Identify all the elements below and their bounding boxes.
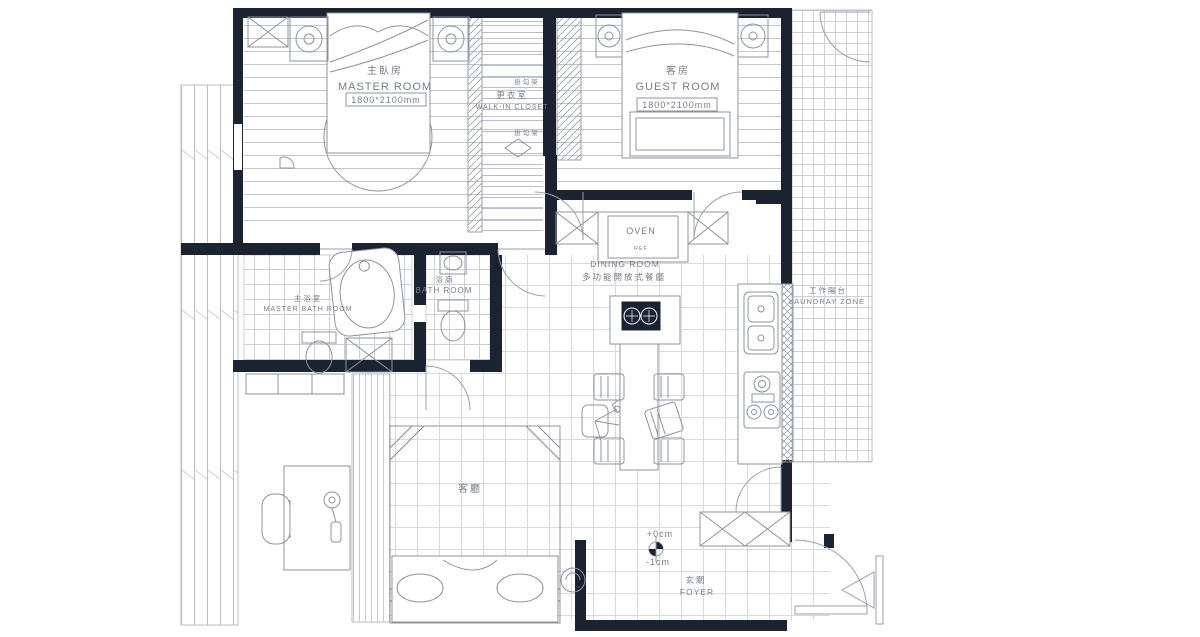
- wall-segment: [781, 8, 792, 194]
- master-bath-label-zh: 主浴室: [294, 293, 323, 303]
- dining-room-label-en: DINING ROOM: [590, 259, 660, 269]
- closet-rack-bottom-label: 掛勾架: [514, 128, 540, 137]
- level-outside-label: -1cm: [646, 557, 670, 567]
- oven-column: [556, 212, 728, 262]
- master-room-label-zh: 主臥房: [367, 64, 403, 77]
- sofa: [392, 556, 558, 622]
- dining-table: [620, 344, 658, 470]
- master-bath-label-en: MASTER BATH ROOM: [264, 306, 353, 313]
- foyer-cabinet: [700, 512, 790, 546]
- guest-bed-size: 1800*2100mm: [642, 100, 712, 110]
- wall-segment: [233, 360, 414, 372]
- desk: [284, 466, 350, 570]
- bath-room-label-zh: 浴廁: [436, 274, 455, 284]
- guest-room-label-zh: 客房: [666, 64, 690, 77]
- closet-rack-top-label: 掛勾架: [514, 77, 540, 86]
- desk-area: [262, 466, 350, 570]
- foyer-label-zh: 玄關: [685, 575, 706, 585]
- kitchen-laundry-wall-hatch: [781, 284, 793, 462]
- wall-segment: [824, 534, 834, 548]
- living-room-label: 客廳: [458, 482, 482, 495]
- oven-label: OVEN: [626, 226, 656, 236]
- bath-room-floor: [426, 255, 490, 360]
- walk-in-closet-shelves: [482, 19, 543, 232]
- wall-segment: [414, 255, 426, 305]
- tv-cabinet-strip: [352, 374, 390, 622]
- side-balcony-deck: [181, 85, 238, 625]
- laundry-balcony-floor: [792, 10, 872, 462]
- floor-plan-drawing: 主臥房 MASTER ROOM 1800*2100mm 掛勾架 更衣室 WALK…: [0, 0, 1200, 637]
- window-slit: [234, 124, 242, 170]
- wall-segment: [470, 360, 502, 372]
- ref-label: REF: [634, 246, 648, 252]
- vanity-counter: [246, 374, 344, 394]
- wall-segment: [575, 620, 787, 631]
- wall-segment: [556, 190, 692, 200]
- wall-segment: [181, 243, 320, 255]
- foyer-label-en: FOYER: [680, 587, 714, 597]
- guest-wardrobe-hatch: [557, 14, 581, 160]
- floor-plan-canvas: 主臥房 MASTER ROOM 1800*2100mm 掛勾架 更衣室 WALK…: [0, 0, 1200, 637]
- kitchen-counter: [738, 284, 782, 464]
- wall-segment: [543, 8, 556, 156]
- wall-segment: [545, 155, 557, 255]
- laundry-label-en: LAUNDRAY ZONE: [789, 297, 865, 306]
- bath-room-label-en: BATH ROOM: [416, 286, 473, 295]
- master-room-label-en: MASTER ROOM: [338, 81, 432, 93]
- wall-segment: [490, 255, 502, 363]
- dining-room-label-zh: 多功能開放式餐廳: [582, 272, 666, 282]
- wall-segment: [575, 540, 586, 631]
- closet-label-en: WALK-IN CLOSET: [476, 104, 549, 111]
- level-entry-label: +0cm: [647, 529, 673, 539]
- guest-room-label-en: GUEST ROOM: [636, 81, 721, 93]
- master-bed-size: 1800*2100mm: [351, 95, 421, 105]
- laundry-label-zh: 工作陽台: [809, 285, 847, 295]
- wall-segment: [781, 190, 792, 284]
- closet-label-zh: 更衣室: [496, 90, 528, 100]
- wall-segment: [414, 243, 498, 255]
- closet-wall-hatch: [468, 14, 482, 232]
- wall-segment: [414, 360, 426, 372]
